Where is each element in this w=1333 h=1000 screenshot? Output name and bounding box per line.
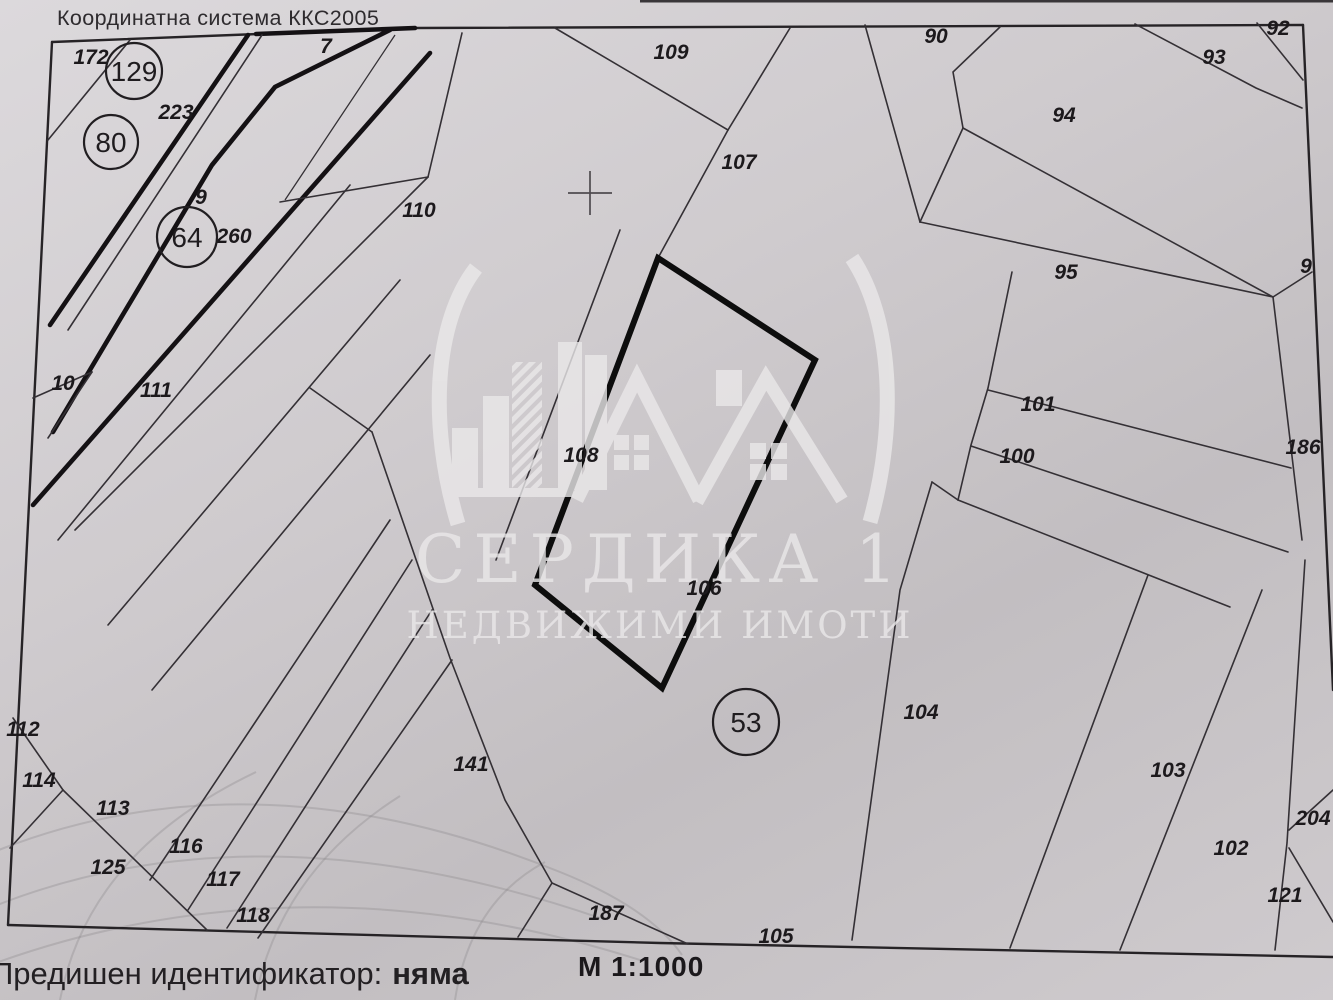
parcel-label-125: 125	[90, 856, 125, 879]
parcel-boundaries	[10, 23, 1333, 950]
parcel-label-187: 187	[588, 902, 624, 925]
cadastral-map: СЕРДИКА 1 НЕДВИЖИМИ ИМОТИ 17222379260101…	[0, 0, 1333, 1000]
circled-parcel-label-80: 80	[95, 127, 126, 158]
circled-parcel-label-129: 129	[111, 56, 158, 87]
parcel-label-102: 102	[1213, 837, 1248, 860]
parcel-label-105: 105	[758, 925, 793, 948]
parcel-label-172: 172	[73, 46, 108, 69]
parcel-label-9: 9	[195, 186, 207, 209]
coordinate-cross	[568, 171, 612, 215]
parcel-label-112: 112	[6, 718, 40, 741]
parcel-label-108: 108	[563, 444, 598, 467]
parcel-label-104: 104	[903, 701, 938, 724]
watermark-subtitle: НЕДВИЖИМИ ИМОТИ	[407, 604, 914, 647]
parcel-label-10: 10	[51, 372, 75, 395]
parcel-label-260: 260	[215, 225, 251, 248]
agency-watermark: СЕРДИКА 1 НЕДВИЖИМИ ИМОТИ	[407, 258, 914, 647]
parcel-label-110: 110	[402, 199, 436, 222]
logo-right-arc	[852, 258, 887, 522]
parcel-label-114: 114	[22, 769, 56, 792]
circled-parcel-label-53: 53	[730, 707, 761, 738]
parcel-label-204: 204	[1294, 807, 1330, 830]
parcel-label-93: 93	[1202, 46, 1226, 69]
previous-identifier-value: няма	[392, 956, 469, 991]
parcel-label-94: 94	[1052, 104, 1076, 127]
parcel-label-111: 111	[140, 379, 172, 402]
parcel-label-113: 113	[96, 797, 130, 820]
parcel-label-121: 121	[1267, 884, 1302, 907]
parcel-label-92: 92	[1266, 17, 1290, 40]
previous-identifier-label: Предишен идентификатор:	[0, 956, 382, 991]
road-boundaries	[33, 28, 430, 505]
parcel-label-95: 95	[1054, 261, 1078, 284]
parcel-label-107: 107	[721, 151, 757, 174]
parcel-label-118: 118	[236, 904, 270, 927]
parcel-label-141: 141	[453, 753, 488, 776]
previous-identifier: Предишен идентификатор:няма	[0, 956, 469, 992]
watermark-title: СЕРДИКА 1	[415, 521, 905, 598]
parcel-label-103: 103	[1150, 759, 1185, 782]
parcel-label-117: 117	[206, 868, 241, 891]
parcel-label-9: 9	[1300, 255, 1312, 278]
cadastral-map-page: Координатна система ККС2005	[0, 0, 1333, 1000]
parcel-label-100: 100	[999, 445, 1034, 468]
parcel-label-7: 7	[320, 35, 333, 58]
parcel-label-116: 116	[169, 835, 203, 858]
circled-parcel-label-64: 64	[171, 222, 202, 253]
scale-label: М 1:1000	[578, 951, 704, 983]
parcel-label-101: 101	[1020, 393, 1055, 416]
parcel-label-223: 223	[157, 101, 193, 124]
map-frame	[8, 25, 1333, 957]
parcel-label-186: 186	[1285, 436, 1320, 459]
parcel-label-109: 109	[653, 41, 688, 64]
parcel-label-90: 90	[924, 25, 948, 48]
parcel-label-106: 106	[686, 577, 721, 600]
